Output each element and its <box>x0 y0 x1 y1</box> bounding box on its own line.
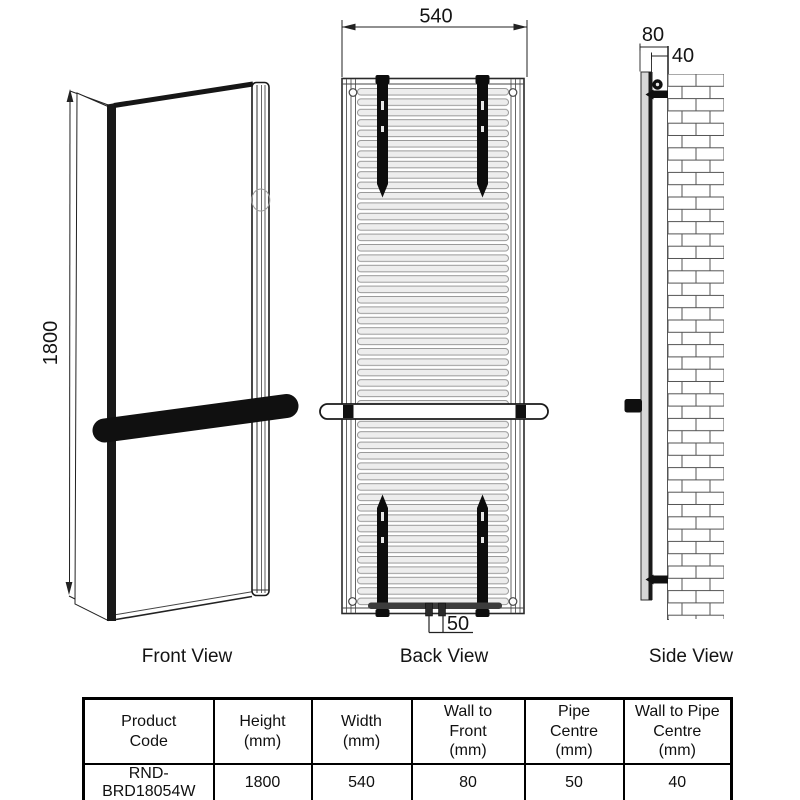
col-header-width: Width (mm) <box>312 699 412 765</box>
col-header-product-code-text: Product Code <box>86 712 212 751</box>
col-header-product-code: Product Code <box>84 699 214 765</box>
col-header-wall-to-front: Wall to Front (mm) <box>412 699 525 765</box>
back-view: 540 <box>320 6 548 668</box>
back-panel <box>320 75 548 617</box>
col-header-wall-to-pipe-centre: Wall to Pipe Centre (mm) <box>624 699 732 765</box>
side-wall-front-dimension-line <box>640 44 668 72</box>
cell-product-code: RND-BRD18054W <box>84 764 214 800</box>
spec-table: Product Code Height (mm) Width (mm) Wall… <box>82 697 733 800</box>
front-view-label: Front View <box>142 646 233 667</box>
col-header-wall-to-front-text: Wall to Front (mm) <box>414 702 523 761</box>
side-wall-pipe-dimension-line <box>652 53 669 80</box>
col-header-width-text: Width (mm) <box>314 712 410 751</box>
col-header-pipe-centre-text: Pipe Centre (mm) <box>527 702 622 761</box>
top-mounting-bracket-left <box>376 75 390 198</box>
col-header-height-text: Height (mm) <box>216 712 310 751</box>
front-left-rail <box>107 103 116 621</box>
cell-wall-to-front: 80 <box>412 764 525 800</box>
front-view: 1800 Front View <box>40 83 287 668</box>
spec-table-header-row: Product Code Height (mm) Width (mm) Wall… <box>84 699 732 765</box>
top-mounting-bracket-right <box>476 75 490 198</box>
side-panel <box>641 72 653 600</box>
cell-width: 540 <box>312 764 412 800</box>
front-panel <box>75 83 287 622</box>
drawing-canvas: 1800 Front View <box>0 0 800 694</box>
brick-wall <box>668 74 724 619</box>
cell-pipe-centre: 50 <box>525 764 624 800</box>
back-towel-bar <box>320 404 548 419</box>
side-wall-front-dimension: 80 <box>642 24 664 46</box>
side-wall-pipe-dimension: 40 <box>672 45 694 67</box>
radiator-technical-drawing: 1800 Front View <box>0 0 800 800</box>
front-right-rail <box>252 83 270 596</box>
cell-wall-to-pipe-centre: 40 <box>624 764 732 800</box>
col-header-height: Height (mm) <box>214 699 312 765</box>
side-top-pipe <box>652 79 662 89</box>
front-height-dimension: 1800 <box>40 321 62 366</box>
back-pipe-centre-dimension: 50 <box>447 613 469 635</box>
col-header-pipe-centre: Pipe Centre (mm) <box>525 699 624 765</box>
cell-height: 1800 <box>214 764 312 800</box>
back-view-label: Back View <box>400 646 489 667</box>
bottom-mounting-bracket-right <box>476 495 490 618</box>
side-view-label: Side View <box>649 646 733 667</box>
bottom-collector <box>368 603 502 610</box>
back-width-dimension-line <box>342 20 527 77</box>
back-width-dimension: 540 <box>419 6 452 28</box>
side-view: 80 40 Side View <box>625 24 734 667</box>
spec-table-data-row: RND-BRD18054W 1800 540 80 50 40 <box>84 764 732 800</box>
col-header-wall-to-pipe-centre-text: Wall to Pipe Centre (mm) <box>626 702 730 761</box>
side-towel-bar-end <box>625 399 643 413</box>
bottom-mounting-bracket-left <box>376 495 390 618</box>
